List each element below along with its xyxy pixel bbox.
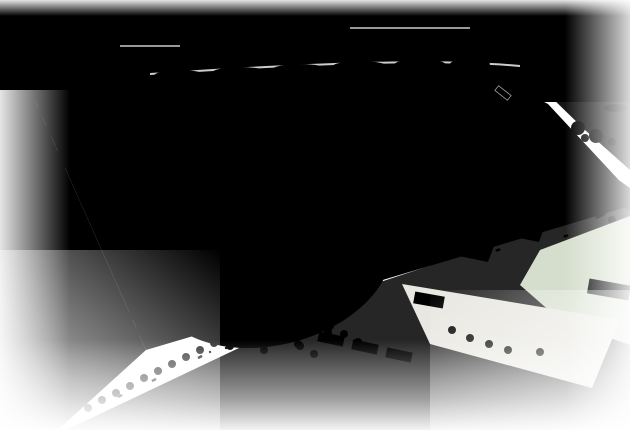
person-dot: [297, 247, 299, 249]
tree: [526, 126, 534, 134]
car: [347, 113, 352, 116]
person-dot: [425, 167, 427, 169]
car: [259, 118, 264, 121]
tree: [308, 295, 316, 303]
tree: [188, 77, 202, 91]
car: [348, 131, 353, 134]
dune: [212, 67, 268, 79]
tree: [243, 144, 251, 152]
person-dot: [341, 185, 343, 187]
person-dot: [359, 171, 361, 173]
car: [292, 134, 297, 137]
person-dot: [373, 261, 375, 263]
tree: [174, 204, 182, 212]
tree: [80, 134, 88, 142]
car: [341, 122, 346, 125]
person-dot: [249, 207, 251, 209]
tree: [366, 159, 374, 167]
car: [267, 117, 272, 120]
car: [356, 121, 361, 124]
person-dot: [281, 195, 283, 197]
car: [283, 116, 288, 119]
person-dot: [205, 121, 207, 123]
person-dot: [329, 247, 331, 249]
person-dot: [317, 177, 319, 179]
car: [307, 115, 312, 118]
tree: [266, 313, 274, 321]
car: [284, 134, 289, 137]
tree: [94, 84, 116, 106]
person-dot: [401, 159, 403, 161]
person-dot: [251, 245, 253, 247]
illustration-canvas: [0, 0, 630, 430]
person-dot: [335, 213, 337, 215]
river-mouth-building: [536, 84, 552, 95]
person-dot: [419, 149, 421, 151]
fade-right: [565, 0, 630, 430]
tree: [326, 322, 334, 330]
tree: [546, 136, 554, 144]
tree: [228, 137, 236, 145]
goal: [415, 148, 419, 150]
car: [315, 115, 320, 118]
person-dot: [387, 199, 389, 201]
car: [309, 124, 314, 127]
tree: [466, 74, 474, 82]
person-dot: [237, 185, 239, 187]
person-dot: [213, 115, 215, 117]
car: [317, 124, 322, 127]
tree: [243, 116, 251, 124]
person-dot: [377, 167, 379, 169]
person-dot: [317, 255, 319, 257]
car: [348, 122, 353, 125]
person-dot: [285, 261, 287, 263]
car: [355, 182, 358, 187]
tree: [416, 76, 424, 84]
person-dot: [261, 257, 263, 259]
person-dot: [243, 193, 245, 195]
car: [275, 117, 280, 120]
person-dot: [305, 267, 307, 269]
person-dot: [229, 119, 231, 121]
plaza-lawn: [238, 125, 256, 143]
person-dot: [195, 117, 197, 119]
car: [323, 114, 328, 117]
tree: [533, 117, 547, 131]
car: [363, 112, 368, 115]
person-dot: [355, 161, 357, 163]
car: [300, 133, 305, 136]
person-dot: [405, 195, 407, 197]
tree: [252, 319, 260, 327]
person-dot: [329, 163, 331, 165]
tree: [69, 159, 83, 173]
tree: [484, 74, 492, 82]
bus: [345, 138, 355, 142]
tree: [378, 164, 386, 172]
tree: [236, 83, 244, 91]
car: [301, 124, 306, 127]
tree: [402, 174, 410, 182]
car: [331, 114, 336, 117]
person-dot: [295, 279, 297, 281]
tree: [252, 142, 260, 150]
car: [269, 126, 274, 129]
tree: [448, 222, 456, 230]
car: [325, 123, 330, 126]
car: [365, 249, 368, 254]
car: [339, 113, 344, 116]
car: [364, 121, 369, 124]
person-dot: [253, 199, 255, 201]
tree: [116, 90, 124, 98]
tree: [260, 130, 268, 138]
person-dot: [369, 209, 371, 211]
car: [308, 133, 313, 136]
tree: [224, 332, 232, 340]
tree: [396, 100, 404, 108]
fade-left: [0, 90, 70, 430]
tree: [428, 67, 442, 81]
tree: [384, 92, 392, 100]
tree: [86, 84, 94, 92]
tree: [268, 73, 282, 87]
car: [316, 133, 321, 136]
tree: [258, 123, 266, 131]
tree: [444, 66, 466, 88]
tree: [123, 83, 137, 97]
person-dot: [261, 191, 263, 193]
car: [332, 132, 337, 135]
tree: [390, 169, 398, 177]
car: [356, 130, 361, 133]
tree: [474, 232, 482, 240]
tree: [520, 222, 528, 230]
tree: [298, 308, 306, 316]
tree: [280, 307, 288, 315]
car: [324, 132, 329, 135]
tree: [176, 86, 184, 94]
tree: [238, 325, 246, 333]
tree: [69, 221, 83, 235]
clubhouse: [206, 101, 221, 113]
tree: [364, 69, 386, 91]
goal: [478, 173, 482, 175]
car: [340, 131, 345, 134]
tree: [354, 154, 362, 162]
tree: [322, 289, 330, 297]
car: [277, 126, 282, 129]
person-dot: [365, 191, 367, 193]
person-dot: [389, 183, 391, 185]
person-dot: [367, 255, 369, 257]
car: [285, 125, 290, 128]
person-dot: [353, 171, 355, 173]
car: [293, 125, 298, 128]
person-dot: [271, 201, 273, 203]
tree: [356, 78, 364, 86]
person-dot: [305, 167, 307, 169]
sports-park-rendering: [0, 0, 630, 430]
tree: [388, 68, 402, 82]
person-dot: [221, 125, 223, 127]
car: [276, 135, 281, 138]
car: [299, 115, 304, 118]
tree: [308, 71, 322, 85]
tree: [226, 130, 234, 138]
car: [333, 123, 338, 126]
fade-top: [0, 0, 630, 16]
tree: [340, 330, 348, 338]
car: [364, 130, 369, 133]
tree: [161, 226, 169, 234]
car: [360, 219, 363, 224]
tree: [414, 179, 422, 187]
person-dot: [451, 169, 453, 171]
person-dot: [273, 249, 275, 251]
tree: [426, 184, 434, 192]
tree: [312, 314, 320, 322]
car: [355, 112, 360, 115]
person-dot: [239, 269, 241, 271]
person-dot: [435, 159, 437, 161]
tree: [143, 78, 157, 92]
person-dot: [351, 203, 353, 205]
person-dot: [413, 175, 415, 177]
car: [291, 116, 296, 119]
tree: [234, 118, 242, 126]
